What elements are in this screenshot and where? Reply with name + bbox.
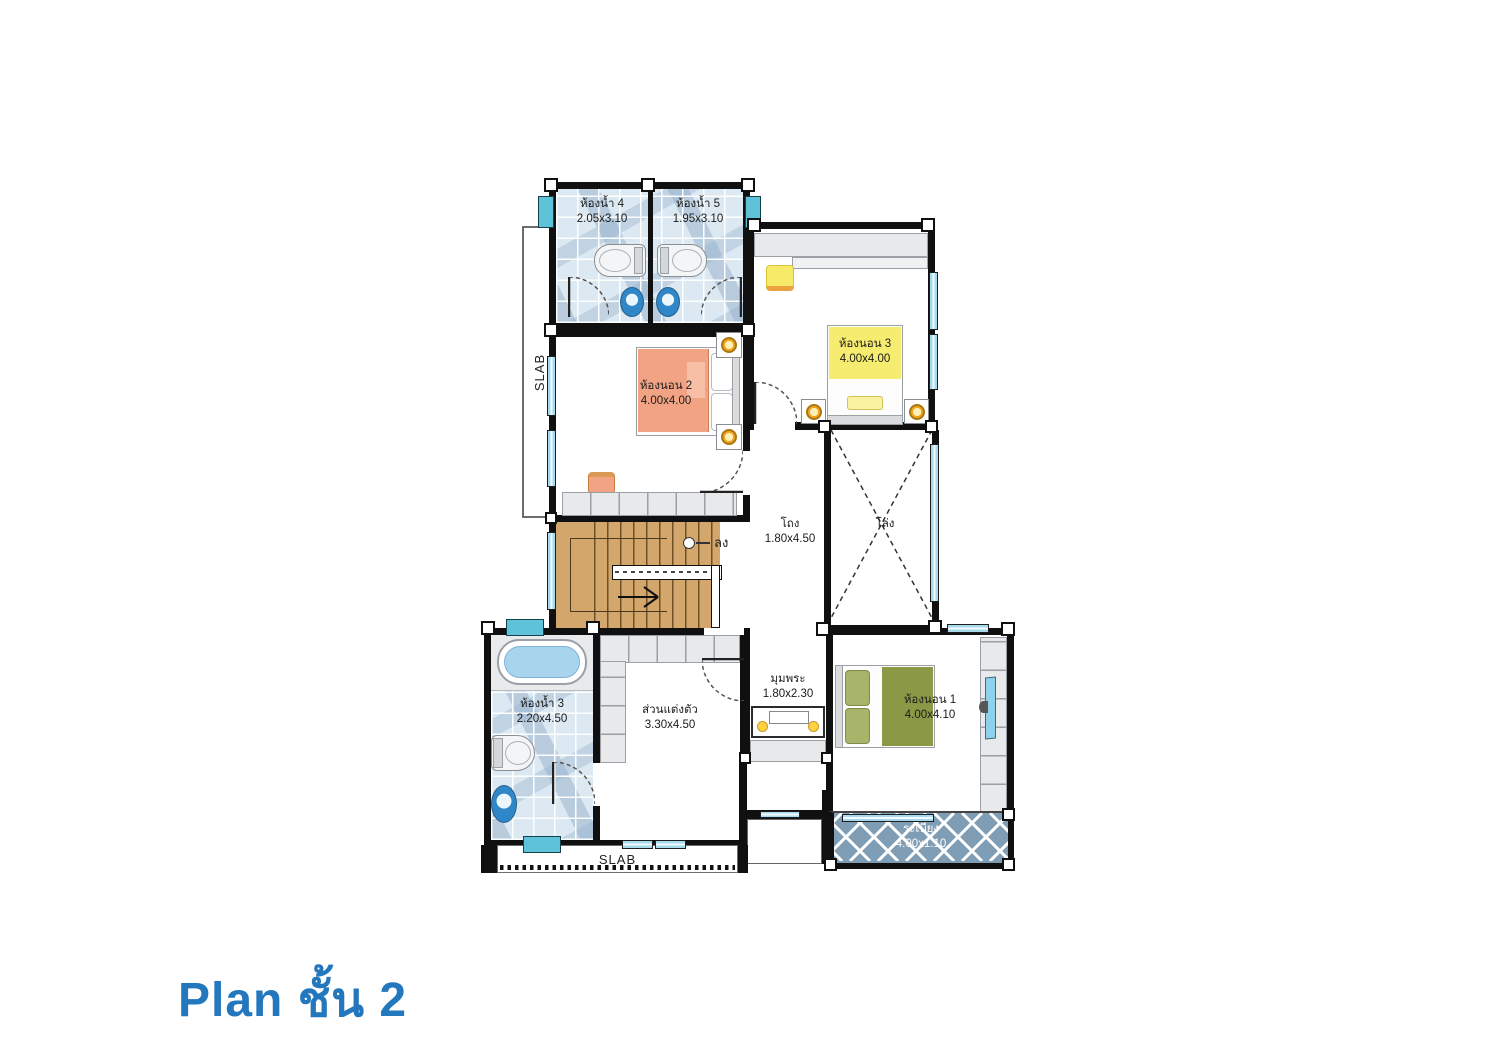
toilet-icon <box>657 244 707 277</box>
column-block <box>738 845 748 873</box>
stair-landing <box>711 565 720 628</box>
column-marker <box>816 622 830 636</box>
column-marker <box>544 323 558 337</box>
column-marker <box>821 752 833 764</box>
bed-pillow <box>845 708 870 744</box>
toilet-icon <box>594 244 646 277</box>
floor-plan-canvas: SLAB ห้องน้ำ 4 2.05x3.10 ห้องน้ำ 5 1.95x… <box>0 0 1499 1061</box>
altar-table-icon <box>751 706 825 738</box>
sink-icon <box>491 785 517 823</box>
down-indicator-line <box>696 542 710 544</box>
buddha-corner: มุมพระ 1.80x2.30 <box>743 628 833 762</box>
column-marker <box>545 512 557 524</box>
louvre-window <box>523 836 561 853</box>
stair-direction-arrow <box>616 584 672 610</box>
room-name: ห้องน้ำ 3 <box>497 697 587 712</box>
column-marker <box>481 621 495 635</box>
candle-icon <box>808 721 819 732</box>
staircase <box>549 522 720 628</box>
room-name: ส่วนแต่งตัว <box>618 703 722 718</box>
chair-icon <box>766 265 794 291</box>
column-marker <box>586 621 600 635</box>
hall-label: โถง 1.80x4.50 <box>744 517 836 547</box>
room-name: มุมพระ <box>750 672 826 687</box>
candle-icon <box>757 721 768 732</box>
room-name: ห้องนอน 2 <box>611 379 721 394</box>
window <box>842 814 934 822</box>
column-marker <box>818 420 831 433</box>
room-dim: 4.00x4.00 <box>611 394 721 409</box>
column-marker <box>1002 858 1015 871</box>
dressing-label: ส่วนแต่งตัว 3.30x4.50 <box>618 703 722 733</box>
window <box>930 444 939 602</box>
column-marker <box>1002 808 1015 821</box>
nightstand-icon <box>716 424 742 450</box>
porch-outline <box>747 819 822 864</box>
column-marker <box>739 752 751 764</box>
bench-icon <box>750 740 826 762</box>
buddha-label: มุมพระ 1.80x2.30 <box>750 672 826 702</box>
door-opening <box>743 451 750 495</box>
bathtub-zone <box>491 635 593 691</box>
column-marker <box>544 178 558 192</box>
room-name: ระเบียง <box>871 822 971 837</box>
window <box>622 840 653 849</box>
bathroom3: ห้องน้ำ 3 2.20x4.50 <box>484 628 600 847</box>
column-marker <box>1001 622 1015 636</box>
lamp-icon <box>806 404 822 420</box>
room-dim: 4.00x4.10 <box>875 708 985 723</box>
dressing-door-arc <box>702 658 745 701</box>
louvre-window <box>506 619 544 636</box>
bathroom5-door-arc <box>701 277 742 318</box>
down-indicator-circle <box>683 537 695 549</box>
window <box>760 811 800 818</box>
stair-handrail <box>612 565 722 580</box>
column-marker <box>925 420 938 433</box>
room-name: โถง <box>744 517 836 532</box>
louvre-window <box>538 196 554 228</box>
column-block <box>481 845 497 873</box>
room-name: ห้องน้ำ 4 <box>556 197 648 212</box>
bed-headboard <box>732 348 739 435</box>
column-marker <box>741 323 755 337</box>
bathroom4-door-arc <box>568 277 609 318</box>
room-dim: 1.80x2.30 <box>750 687 826 702</box>
bathroom4-label: ห้องน้ำ 4 2.05x3.10 <box>556 197 648 227</box>
lamp-icon <box>909 404 925 420</box>
page-title: Plan ชั้น 2 <box>178 962 407 1038</box>
bedroom2-label: ห้องนอน 2 4.00x4.00 <box>611 379 721 409</box>
window <box>929 272 938 330</box>
bed-pillow <box>847 396 883 410</box>
sink-icon <box>620 287 644 317</box>
bedroom1: ห้องนอน 1 4.00x4.10 <box>826 628 1014 820</box>
bathroom5-label: ห้องน้ำ 5 1.95x3.10 <box>653 197 743 227</box>
bedroom3-door-arc <box>754 382 797 425</box>
room-name: ห้องนอน 3 <box>810 337 920 352</box>
column-marker <box>741 178 755 192</box>
room-dim: 1.95x3.10 <box>653 212 743 227</box>
column-marker <box>824 858 837 871</box>
room-dim: 2.20x4.50 <box>497 712 587 727</box>
window <box>655 840 686 849</box>
column-marker <box>928 620 942 634</box>
room-name: ห้องนอน 1 <box>875 693 985 708</box>
bathtub-icon <box>497 639 587 685</box>
room-dim: 3.30x4.50 <box>618 718 722 733</box>
lamp-icon <box>721 429 737 445</box>
slab-left-label: SLAB <box>532 353 547 390</box>
bed-pillow <box>845 670 870 706</box>
window <box>547 532 556 610</box>
wardrobe-shelf <box>792 257 928 269</box>
void-label: โล่ง <box>840 517 930 532</box>
bed-headboard <box>836 666 843 747</box>
column-marker <box>921 218 935 232</box>
bed-headboard <box>828 415 902 424</box>
window <box>547 430 556 487</box>
column-marker <box>747 218 761 232</box>
room-name: ห้องน้ำ 5 <box>653 197 743 212</box>
window <box>929 334 938 390</box>
slab-dotted-edge <box>500 865 735 870</box>
column-marker <box>641 178 655 192</box>
room-dim: 4.00x1.10 <box>871 837 971 852</box>
bathroom3-label: ห้องน้ำ 3 2.20x4.50 <box>497 697 587 727</box>
room-dim: 4.00x4.00 <box>810 352 920 367</box>
bathroom3-door-arc <box>552 762 595 805</box>
bedroom1-label: ห้องนอน 1 4.00x4.10 <box>875 693 985 723</box>
cabinet-icon <box>562 492 737 516</box>
bedroom3-label: ห้องนอน 3 4.00x4.00 <box>810 337 920 367</box>
room-dim: 2.05x3.10 <box>556 212 648 227</box>
lamp-icon <box>721 337 737 353</box>
wardrobe-icon <box>754 233 928 257</box>
stairs-down-label: ลง <box>714 535 744 552</box>
door-opening <box>704 628 744 635</box>
bedroom2-door-arc <box>700 450 743 493</box>
window <box>547 356 556 416</box>
toilet-icon <box>491 735 535 771</box>
room-name: โล่ง <box>840 517 930 532</box>
room-dim: 1.80x4.50 <box>744 532 836 547</box>
nightstand-icon <box>716 332 742 358</box>
balcony-label: ระเบียง 4.00x1.10 <box>871 822 971 852</box>
sink-icon <box>656 287 680 317</box>
stool-icon <box>588 472 615 494</box>
window <box>947 624 989 633</box>
